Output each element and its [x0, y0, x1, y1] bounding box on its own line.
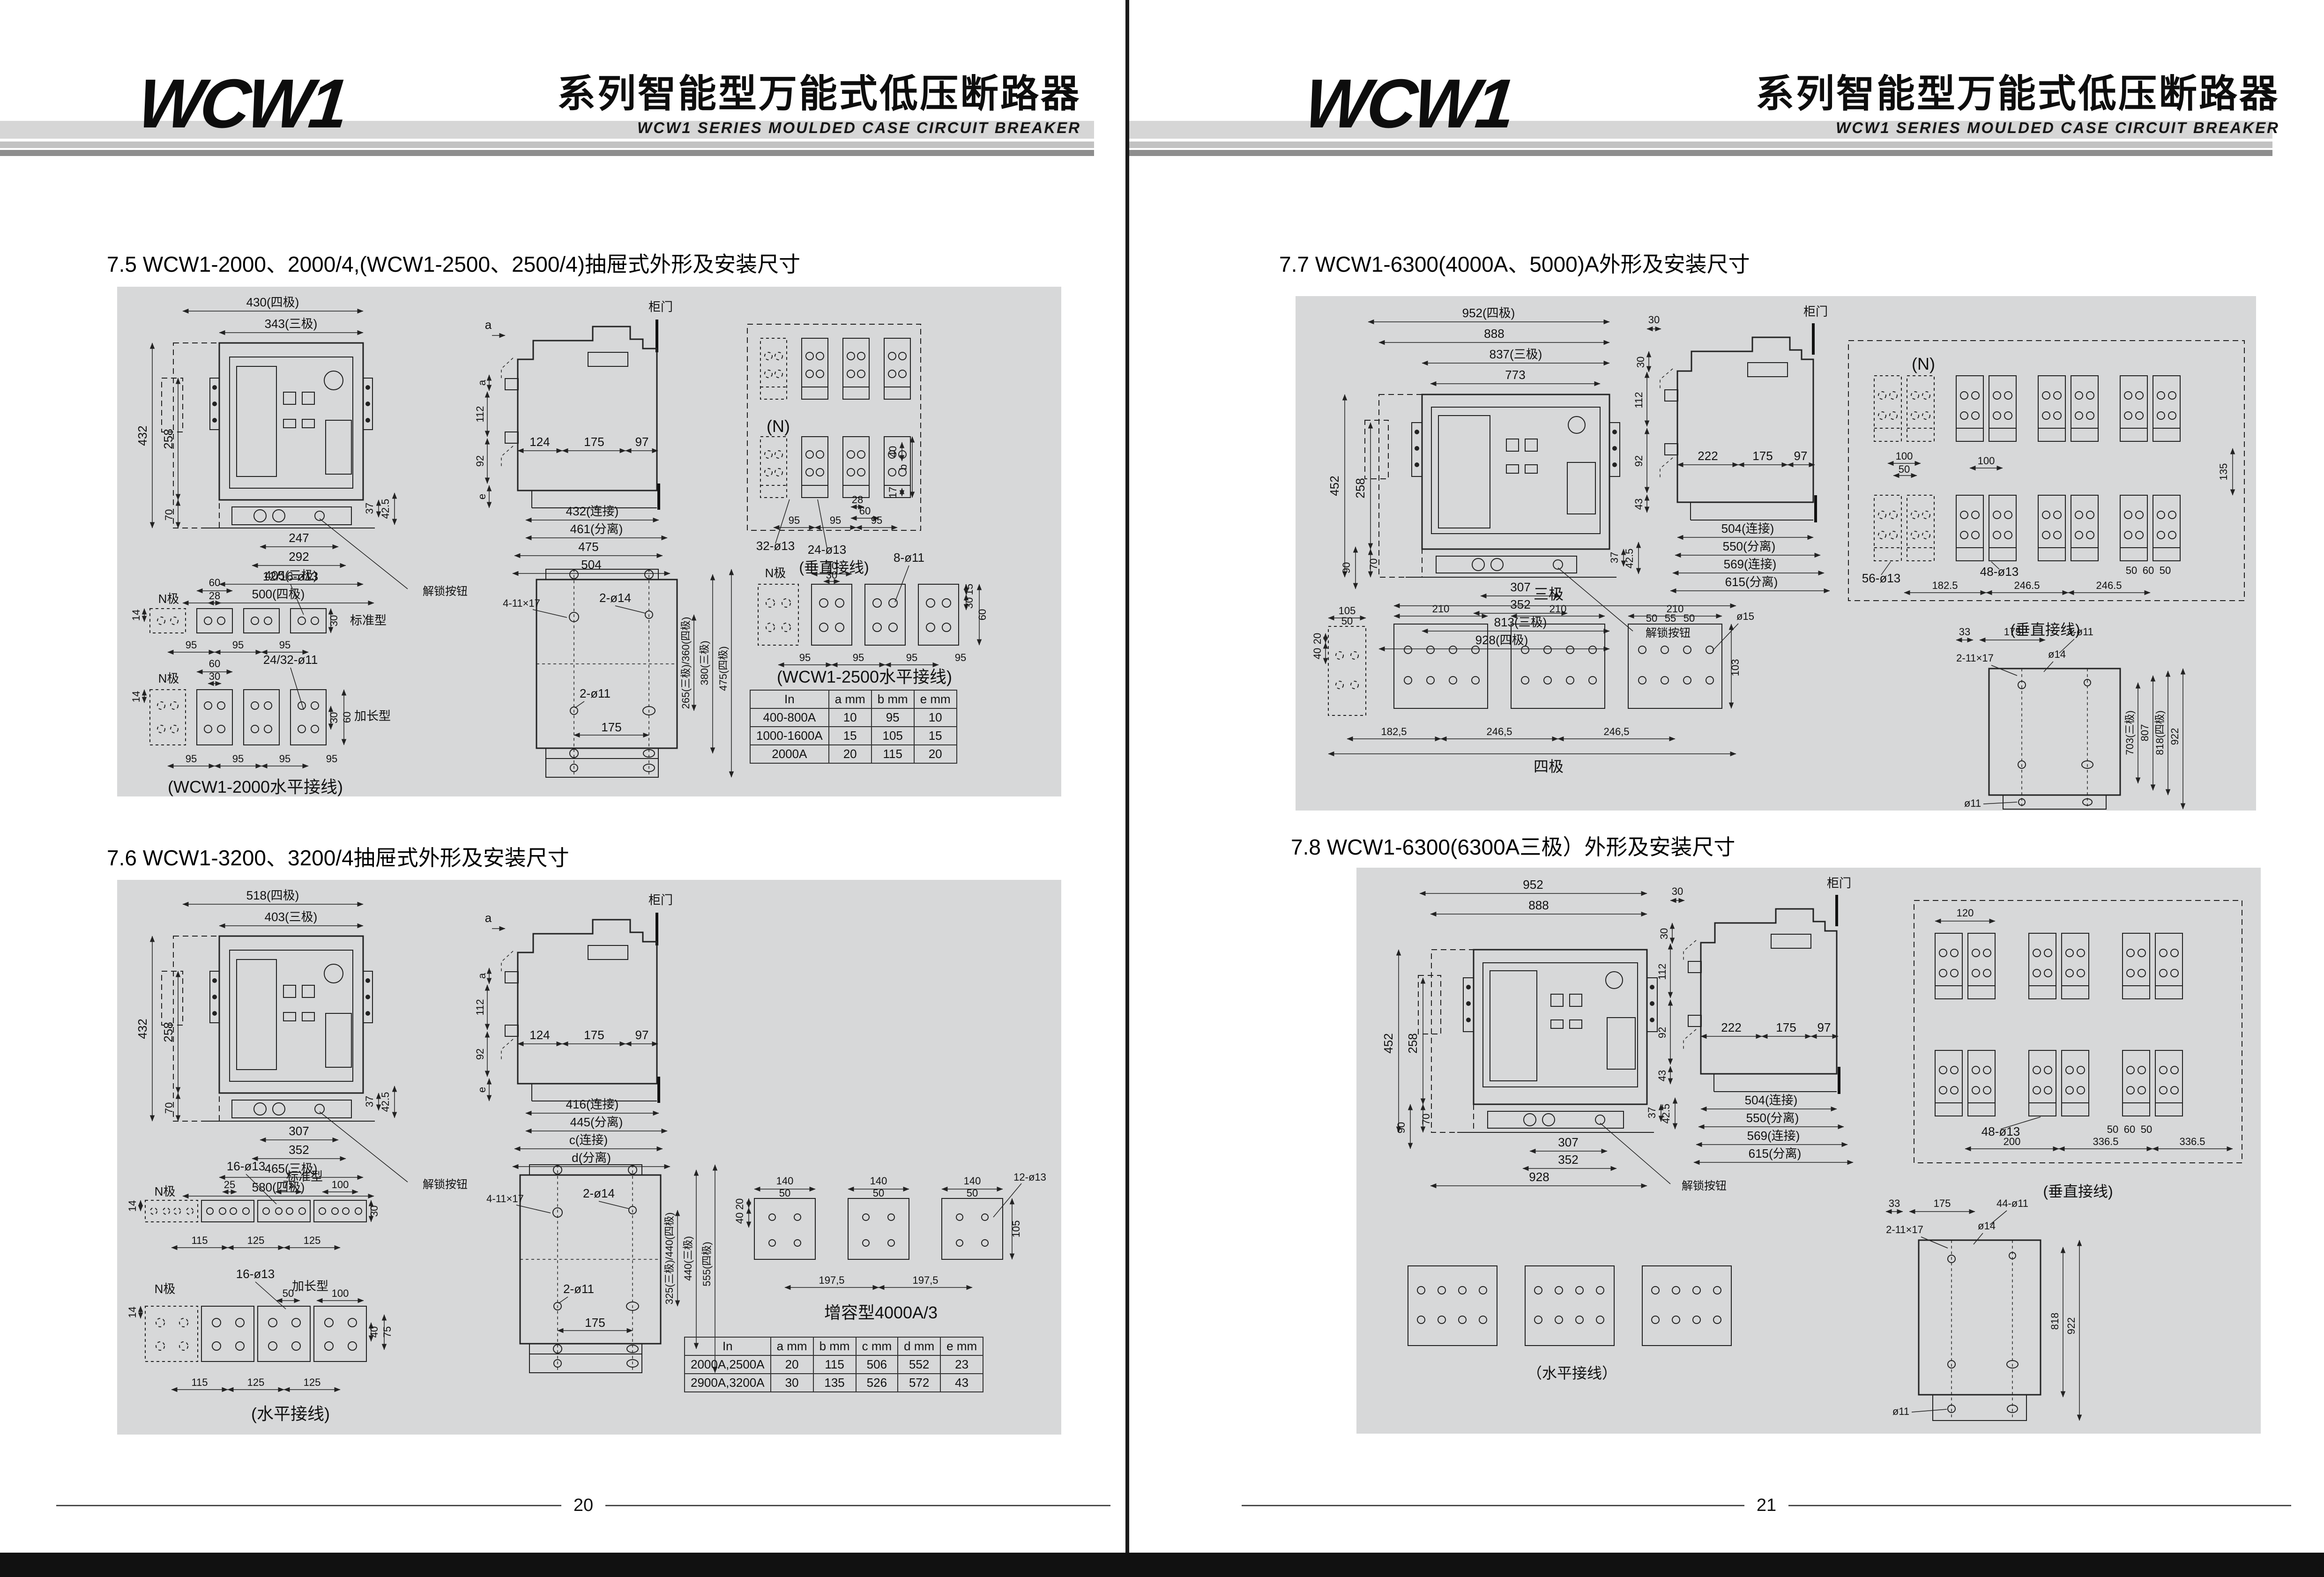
dim-label: 100	[1896, 450, 1913, 462]
dim-label: 922	[2065, 1317, 2077, 1335]
section-title-7-5: 7.5 WCW1-2000、2000/4,(WCW1-2500、2500/4)抽…	[107, 247, 800, 278]
dim-label: 807	[2139, 724, 2151, 742]
dim-label: 40	[368, 1326, 380, 1338]
table-cell: 95	[871, 708, 914, 727]
dim-label: 818	[2049, 1313, 2061, 1330]
table-row: 2900A,3200A3013552657243	[685, 1374, 983, 1392]
dim-label: 28	[209, 590, 220, 602]
dim-label: 112	[1633, 392, 1645, 408]
dim-label: 60	[209, 577, 220, 588]
dim-label: 416(连接)	[566, 1097, 619, 1111]
dim-label: 518(四极)	[246, 888, 299, 902]
dim-label: 50	[283, 1287, 294, 1299]
dim-label: 50	[1683, 612, 1695, 624]
table-cell: 526	[856, 1374, 898, 1392]
dim-label: 92	[1656, 1027, 1668, 1038]
table-header: a mm	[771, 1337, 813, 1355]
dim-label: 60	[341, 712, 353, 723]
table-cell: 105	[871, 727, 914, 745]
dim-label: 352	[289, 1143, 309, 1157]
dim-label: 97	[635, 1028, 649, 1042]
horizontal-wiring-ext-7-6: N极 16-ø13 加长型 50 100 14 40 75 115 125 12…	[127, 1267, 393, 1423]
dim-label: 440(三极)	[682, 1236, 694, 1280]
dim-label: d(分离)	[572, 1151, 611, 1165]
dim-label: 60	[2124, 1123, 2135, 1135]
dim-label: 928	[1529, 1170, 1549, 1184]
unlock-button-label: 解锁按钮	[1682, 1180, 1727, 1192]
dim-label: 140	[776, 1175, 794, 1187]
dim-label: 60	[2143, 565, 2154, 576]
figure-7-8: 952 888 452 258 90 70 37 42.5 307 352	[1356, 868, 2261, 1434]
dim-label: 14	[127, 1200, 138, 1212]
dim-label: 504(连接)	[1745, 1093, 1798, 1107]
dim-label: 112	[1656, 963, 1668, 980]
dim-label: 42.5	[1660, 1104, 1672, 1124]
hole-spec-label: ø11	[1964, 797, 1981, 809]
dim-label: 246.5	[2014, 580, 2040, 591]
dim-label: 197,5	[819, 1274, 844, 1286]
hole-spec-label: 12-ø13	[1013, 1171, 1046, 1183]
table-cell: 20	[829, 745, 871, 763]
mounting-plate-7-5: 4-11×17 2-ø14 2-ø11 175 265(三极)/360(四极) …	[503, 569, 731, 777]
section-title-7-7: 7.7 WCW1-6300(4000A、5000)A外形及安装尺寸	[1279, 247, 1750, 278]
extended-type-label: 加长型	[354, 709, 391, 723]
dim-label: 97	[635, 435, 649, 449]
dim-label: 95	[853, 652, 864, 663]
three-pole-label: 三极	[1534, 586, 1564, 603]
dim-label: 343(三极)	[265, 317, 318, 331]
dim-label: 103	[1729, 659, 1741, 677]
neutral-pole-label: N极	[155, 1282, 176, 1296]
cabinet-door-label: 柜门	[648, 300, 673, 314]
horizontal-wiring-2000-caption: (WCW1-2000水平接线)	[168, 777, 343, 796]
table-header: e mm	[940, 1337, 983, 1355]
dim-label: 550(分离)	[1746, 1111, 1799, 1125]
unlock-button-label: 解锁按钮	[423, 1178, 468, 1191]
page-right: WCW1 系列智能型万能式低压断路器 WCW1 SERIES MOULDED C…	[1129, 0, 2324, 1577]
dim-label: 95	[232, 639, 244, 651]
dim-label: 336.5	[2093, 1136, 2118, 1147]
dim-label: 452	[1381, 1033, 1395, 1053]
table-cell: 552	[898, 1355, 940, 1374]
dim-label: 175	[584, 1028, 604, 1042]
dim-label: 20	[734, 1198, 745, 1210]
dim-label: 475	[578, 540, 598, 554]
dim-label: 818(四极)	[2154, 710, 2166, 755]
dim-label: 352	[1558, 1153, 1578, 1167]
hole-spec-label: 44-ø11	[1996, 1198, 2028, 1209]
dim-label: 95	[830, 514, 841, 526]
dim-label: 14	[130, 691, 142, 702]
table-cell: 2900A,3200A	[685, 1374, 771, 1392]
dim-label: 247	[289, 531, 309, 545]
table-cell: 15	[829, 727, 871, 745]
dim-label: 14	[130, 610, 142, 621]
dim-label: 92	[1633, 455, 1645, 467]
table-row: 2000A2011520	[750, 745, 957, 763]
dim-label: 60	[209, 658, 220, 669]
dim-label: 75	[283, 1179, 294, 1190]
dim-label: 307	[1558, 1135, 1578, 1149]
table-header: d mm	[898, 1337, 940, 1355]
dim-label: 615(分离)	[1749, 1146, 1802, 1160]
dim-label: 928(四极)	[1475, 633, 1528, 647]
hole-spec-label: ø14	[1978, 1220, 1996, 1232]
header-band-medium	[0, 141, 1094, 148]
dim-label: 175	[601, 720, 621, 734]
dim-label: 70	[163, 509, 175, 521]
dim-label: 175	[1776, 1020, 1796, 1034]
vertical-terminals-7-8: 120 48-ø13 506050 200 336.5 336.5 (垂直接线)	[1914, 900, 2242, 1200]
dim-label: 246,5	[1486, 726, 1512, 737]
dim-label: 432	[135, 1019, 149, 1039]
dim-label: 813(三极)	[1494, 615, 1547, 629]
table-header: b mm	[813, 1337, 856, 1355]
dim-label: 210	[1549, 603, 1567, 615]
table-header: e mm	[914, 690, 957, 708]
dim-label: 25	[224, 1179, 235, 1190]
header-band-dark	[1129, 150, 2272, 156]
dim-label: 70	[1420, 1114, 1432, 1125]
dim-label: 97	[1817, 1020, 1831, 1034]
scan-bottom-bar	[0, 1553, 2324, 1577]
dim-label: 37	[1646, 1107, 1658, 1118]
dim-label: 40	[734, 1213, 745, 1224]
dim-label: 100	[1978, 455, 1995, 467]
dim-label: 100	[332, 1287, 349, 1299]
dim-label: 307	[1510, 580, 1530, 594]
table-header: b mm	[871, 690, 914, 708]
hole-spec-label: 2-ø14	[599, 591, 631, 605]
dim-label: 175	[2004, 626, 2021, 638]
dim-label: c(连接)	[569, 1133, 608, 1147]
dim-label: 307	[289, 1124, 309, 1138]
dim-label: 550(分离)	[1723, 539, 1776, 553]
dim-label: 569(连接)	[1747, 1129, 1800, 1143]
dim-label: 95	[799, 652, 811, 663]
neutral-pole-label: N极	[155, 1184, 176, 1198]
dim-label: 50	[967, 1187, 978, 1199]
front-view-7-5: 430(四极) 343(三极) 432 258 70 37 42.5 247 2…	[135, 295, 468, 603]
dim-label: 95	[955, 652, 966, 663]
dim-label: 888	[1528, 898, 1549, 912]
dim-label: 703(三极)	[2124, 710, 2136, 755]
cabinet-door-label: 柜门	[1827, 876, 1851, 890]
dim-label: 569(连接)	[1724, 557, 1777, 571]
dim-label: 50	[2107, 1123, 2118, 1135]
dim-label: b	[897, 464, 909, 470]
dim-label: 432	[135, 425, 149, 446]
table-header: c mm	[856, 1337, 898, 1355]
dim-label: 175	[1752, 449, 1773, 463]
dim-label: 14	[127, 1307, 138, 1318]
dim-label: 175	[585, 1316, 605, 1330]
dim-label: 197,5	[912, 1274, 938, 1286]
dim-label: 888	[1484, 327, 1504, 341]
mounting-plate-7-8: 33 175 44-ø11 2-11×17 ø14 818 922 ø11	[1886, 1198, 2079, 1421]
side-view-7-5: 柜门 a a 112 92 e 124 175 97 432(连接) 461(分…	[474, 300, 673, 573]
dim-label: 30	[368, 1205, 380, 1217]
neutral-pole-label: (N)	[1912, 354, 1935, 373]
figure-7-7: 952(四极) 888 837(三极) 773 452 258 90 70 37	[1296, 296, 2256, 811]
hole-spec-label: 2-11×17	[1956, 652, 1994, 664]
dim-label: 175	[584, 435, 604, 449]
dim-label: 952	[1523, 878, 1543, 892]
hole-spec-label: 24/32-ø11	[263, 653, 318, 667]
dim-label: 175	[1934, 1198, 1951, 1209]
table-cell: 43	[940, 1374, 983, 1392]
hole-spec-label: 2-11×17	[1886, 1224, 1923, 1235]
header-band-dark	[0, 150, 1094, 156]
table-cell: 1000-1600A	[750, 727, 829, 745]
boost-type-caption: 增容型4000A/3	[824, 1303, 938, 1322]
hole-spec-label: ø14	[2048, 648, 2066, 660]
dim-label: e	[476, 1087, 488, 1093]
figure-7-5: 430(四极) 343(三极) 432 258 70 37 42.5 247 2…	[117, 287, 1061, 796]
dim-label: 95	[326, 753, 337, 765]
hole-spec-label: 16-ø13	[236, 1267, 275, 1281]
table-cell: 135	[813, 1374, 856, 1392]
dim-label: 124	[529, 1028, 550, 1042]
horizontal-terminals-7-8: （水平接线）	[1408, 1266, 1731, 1382]
unlock-button-label: 解锁按钮	[1646, 627, 1691, 640]
dim-label: 37	[364, 503, 375, 514]
front-view-7-6: 518(四极) 403(三极) 432 258 70 37 42.5 307 3…	[135, 888, 468, 1196]
dim-label: 30	[328, 712, 340, 723]
page-gutter-line	[1125, 0, 1129, 1555]
dim-label: 246.5	[2096, 580, 2122, 591]
table-cell: 10	[914, 708, 957, 727]
dim-label: 42.5	[1624, 549, 1635, 569]
dim-label: 352	[1510, 597, 1530, 611]
hole-spec-label: 24-ø13	[808, 543, 846, 557]
dim-label: 95	[186, 753, 197, 765]
vertical-wiring-caption: (垂直接线)	[2043, 1183, 2113, 1200]
horizontal-terminals-7-7: 三极 105 50 210 210 210 505550 ø15 103 20 …	[1311, 586, 1754, 775]
dim-label: 90	[1341, 562, 1352, 573]
neutral-pole-label: (N)	[767, 417, 790, 436]
dim-label: 50	[2160, 565, 2171, 576]
page-number: 20	[574, 1495, 593, 1516]
footer-rule	[1788, 1505, 2291, 1506]
horizontal-wiring-2500-caption: (WCW1-2500水平接线)	[777, 667, 952, 686]
table-header: In	[750, 690, 829, 708]
dim-label: 30	[963, 597, 975, 609]
dim-label: 112	[474, 999, 486, 1015]
dim-label: 50	[779, 1187, 790, 1199]
hole-spec-label: 8-ø11	[894, 550, 924, 565]
dim-label: 50	[1899, 463, 1910, 475]
table-header: a mm	[829, 690, 871, 708]
dim-label: 50	[1341, 615, 1353, 627]
page-footer-right: 21	[1242, 1495, 2291, 1516]
figure-7-6: 518(四极) 403(三极) 432 258 70 37 42.5 307 3…	[117, 880, 1061, 1435]
horizontal-wiring-2500: N极 70 30 8-ø11 15 30 60 95 95 95 95 (WCW…	[758, 550, 988, 686]
dim-label: 555(四极)	[701, 1242, 713, 1286]
mounting-plate-7-6: 4-11×17 2-ø14 2-ø11 175 325(三极)/440(四极) …	[486, 1165, 715, 1373]
dim-label: 30	[1648, 314, 1660, 326]
footer-rule	[1242, 1505, 1744, 1506]
dim-label: 50	[2141, 1123, 2152, 1135]
dim-label: 837(三极)	[1490, 347, 1542, 361]
hole-spec-label: 32-ø13	[756, 539, 795, 553]
dim-label: 60	[976, 609, 988, 620]
dim-label: 95	[789, 514, 800, 526]
dim-label: a	[476, 973, 488, 979]
dim-label: 20	[1311, 633, 1323, 644]
footer-rule	[56, 1505, 561, 1506]
mounting-plate-7-7: 33 175 4-ø11 2-11×17 ø14 703(三极) 807 818…	[1956, 626, 2183, 809]
table-cell: 20	[914, 745, 957, 763]
dim-label: 15	[963, 584, 975, 595]
horizontal-wiring-caption: （水平接线）	[1527, 1365, 1617, 1382]
dim-label: 55	[1665, 612, 1676, 624]
dim-label: 50	[1646, 612, 1657, 624]
dim-label: 100	[332, 1179, 349, 1190]
dim-label: 125	[247, 1376, 265, 1388]
dim-label: 200	[2004, 1136, 2021, 1147]
dim-label: 17	[887, 487, 899, 498]
dim-label: 50	[2126, 565, 2137, 576]
vertical-terminals-7-5: (N) 28 60 95 95 95 32-ø13 24-ø13 40 17 b…	[747, 324, 921, 576]
table-cell: 572	[898, 1374, 940, 1392]
cabinet-door-label: 柜门	[648, 893, 673, 907]
hole-spec-label: 2-ø11	[580, 686, 611, 700]
table-header: In	[685, 1337, 771, 1355]
dim-label: 258	[1406, 1033, 1420, 1053]
dim-label: 92	[474, 1049, 486, 1060]
header-band-medium	[1129, 141, 2272, 148]
hole-spec-label: 48-ø13	[1980, 565, 2019, 579]
dim-label: 43	[1656, 1070, 1668, 1081]
header-subtitle: WCW1 SERIES MOULDED CASE CIRCUIT BREAKER	[637, 119, 1081, 137]
dim-label: 30	[209, 670, 220, 682]
dim-label: 37	[364, 1096, 375, 1107]
drawing-7-7: 952(四极) 888 837(三极) 773 452 258 90 70 37	[1296, 296, 2256, 811]
dim-label: e	[476, 494, 488, 499]
dim-label: 42.5	[380, 1092, 391, 1112]
dim-label: 124	[529, 435, 550, 449]
dim-label: 615(分离)	[1725, 575, 1778, 589]
dim-label: 135	[2218, 463, 2229, 481]
dim-label: 105	[1010, 1220, 1022, 1238]
dim-label: 43	[1633, 498, 1645, 510]
dim-label: 95	[232, 753, 244, 765]
table-row: 2000A,2500A2011550655223	[685, 1355, 983, 1374]
dim-label: 112	[474, 406, 486, 422]
dim-label: 452	[1327, 476, 1341, 496]
dim-label: 258	[161, 429, 175, 449]
dim-label: 42.5	[380, 499, 391, 519]
dim-label: 222	[1698, 449, 1718, 463]
dim-label: 504(连接)	[1721, 521, 1774, 536]
dim-label: a	[476, 379, 488, 386]
dim-label: 952(四极)	[1462, 306, 1515, 320]
dim-label: 60	[859, 505, 871, 517]
hole-spec-label: ø15	[1736, 610, 1754, 622]
dim-label: 182.5	[1932, 580, 1958, 591]
dim-label: 125	[304, 1376, 321, 1388]
dim-label: 30	[1658, 928, 1670, 939]
dimension-table-7-6: Ina mmb mmc mmd mme mm2000A,2500A2011550…	[684, 1337, 983, 1392]
unlock-button-label: 解锁按钮	[423, 585, 468, 598]
page-footer-left: 20	[56, 1495, 1110, 1516]
hole-spec-label: 16-ø13	[227, 1159, 265, 1173]
horizontal-wiring-caption: (水平接线)	[251, 1404, 330, 1423]
dim-label: 125	[304, 1235, 321, 1246]
dim-label: 37	[1609, 552, 1620, 563]
dim-label: 40	[887, 446, 899, 457]
dim-label: 210	[1432, 603, 1450, 615]
dim-label: 430(四极)	[246, 295, 299, 309]
header-subtitle: WCW1 SERIES MOULDED CASE CIRCUIT BREAKER	[1836, 119, 2279, 137]
table-cell: 10	[829, 708, 871, 727]
dim-label: 115	[191, 1376, 208, 1388]
dim-label: 97	[1794, 449, 1808, 463]
footer-rule	[605, 1505, 1110, 1506]
dim-label: 336.5	[2179, 1136, 2205, 1147]
dim-label: 33	[1889, 1198, 1900, 1209]
dim-label: 125	[247, 1235, 265, 1246]
dim-label: 258	[161, 1022, 175, 1042]
table-row: 400-800A109510	[750, 708, 957, 727]
neutral-pole-label: N极	[158, 671, 179, 685]
hole-spec-label: 2-ø11	[563, 1282, 594, 1296]
dim-label: 70	[163, 1102, 175, 1114]
neutral-pole-label: N极	[158, 592, 179, 606]
dim-label: 432(连接)	[566, 504, 619, 518]
extended-type-label: 加长型	[292, 1279, 328, 1293]
dim-label: 95	[906, 652, 917, 663]
section-title-7-8: 7.8 WCW1-6300(6300A三极）外形及安装尺寸	[1291, 830, 1735, 861]
dim-label: 475(四极)	[717, 646, 729, 691]
section-title-7-6: 7.6 WCW1-3200、3200/4抽屉式外形及安装尺寸	[107, 841, 569, 872]
dim-label: 30	[826, 569, 837, 581]
dim-label: 773	[1505, 368, 1525, 382]
dim-label: 403(三极)	[265, 910, 318, 924]
dim-label: 33	[1959, 626, 1970, 638]
table-row: 1000-1600A1510515	[750, 727, 957, 745]
brand-logo: WCW1	[1301, 69, 1515, 139]
header-title: 系列智能型万能式低压断路器	[1756, 73, 2279, 115]
header-title: 系列智能型万能式低压断路器	[557, 73, 1081, 115]
hole-spec-label: ø11	[1892, 1406, 1909, 1417]
dim-label: 115	[191, 1235, 208, 1246]
horizontal-wiring-std-7-6: 16-ø13 N极 标准型 25 75 100 14 30 115 125 12…	[127, 1159, 380, 1248]
dim-label: 140	[870, 1175, 887, 1187]
side-view-7-8: 柜门 30 30 112 92 43 222 175 97 504(连接) 55…	[1656, 876, 1853, 1162]
table-cell: 2000A,2500A	[685, 1355, 771, 1374]
vertical-terminals-7-7: (N) 100 50 100 56-ø13 48-ø13 506050 182.…	[1848, 341, 2244, 638]
side-view-7-6: 柜门 a a 112 92 e 124 175 97 416(连接) 445(分…	[474, 893, 673, 1167]
four-pole-label: 四极	[1534, 758, 1564, 775]
dim-label: 222	[1721, 1020, 1741, 1034]
hole-spec-label: 56-ø13	[1862, 571, 1900, 585]
dim-label: 292	[289, 550, 309, 564]
dim-label: 120	[1957, 907, 1974, 919]
table-cell: 115	[871, 745, 914, 763]
dim-label: 95	[186, 639, 197, 651]
dim-label: 258	[1353, 478, 1367, 498]
dim-label: a	[485, 911, 492, 925]
brand-logo: WCW1	[134, 69, 348, 139]
dim-label: 922	[2169, 728, 2181, 745]
dim-label: 95	[279, 753, 290, 765]
hole-spec-label: 4-11×17	[486, 1193, 524, 1205]
dim-label: 246,5	[1603, 726, 1629, 737]
dim-label: 30	[328, 615, 340, 626]
dim-label: 28	[852, 494, 863, 506]
